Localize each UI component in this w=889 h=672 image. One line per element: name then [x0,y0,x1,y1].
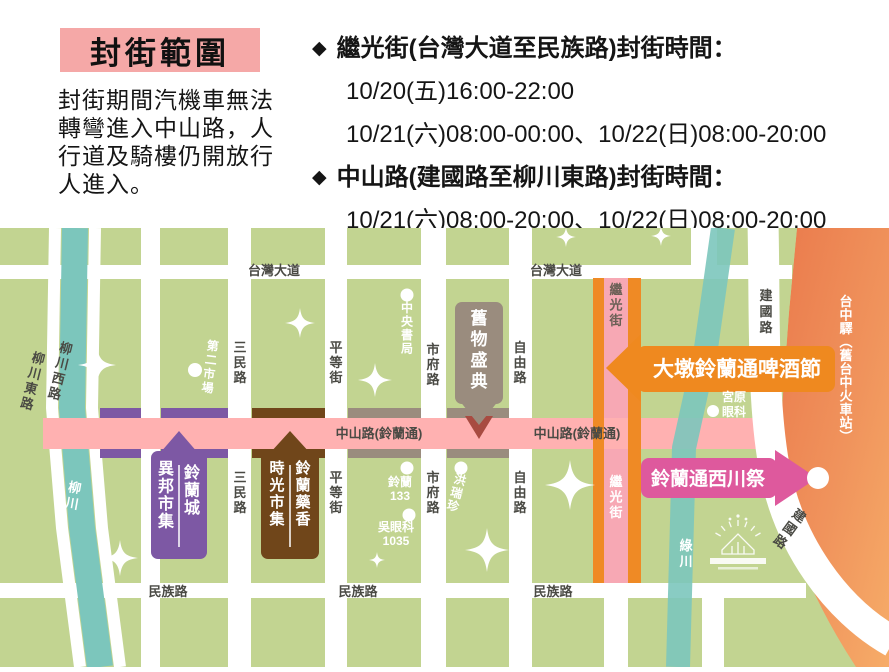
central-bookstore-label: 中央書局 [401,300,414,356]
shifu-rd-label: 市府路 [426,342,440,387]
closure-time-line: 10/21(六)08:00-00:00、10/22(日)08:00-20:00 [312,114,872,149]
taiwan-blvd-label: 台灣大道 [530,263,582,278]
miyahara-label-1: 宮原 [722,389,746,404]
sanmin-rd-label: 三民路 [233,340,247,385]
exotic-market-title: 異邦市集 [157,460,175,531]
wu-eye-clinic-label: 吳眼科 [377,519,414,534]
time-market-title: 時光市集 [268,459,285,528]
jiguang-st-south-road [604,598,628,667]
suzuran-133-label: 鈴蘭 [388,474,412,489]
poi-central-bookstore: 中央書局 [401,289,414,356]
ziyou-rd-label: 自由路 [513,340,527,385]
pingdeng-st-label: 平等街 [328,470,342,515]
closure-time-line: 10/20(五)16:00-22:00 [312,71,872,106]
time-market-name: 鈴蘭藥香 [294,459,311,528]
ziyou-rd-label: 自由路 [513,470,527,515]
closure-heading-text: 中山路(建國路至柳川東路)封街時間： [337,157,737,192]
diamond-bullet-icon: ◆ [312,166,327,189]
sanmin-rd-label: 三民路 [233,470,247,515]
zhongshan-rd-label: 中山路(鈴蘭通) [336,426,423,441]
minzu-rd-label: 民族路 [338,584,378,599]
festival-endpoint-dot [807,467,829,489]
taiwan-blvd-road [0,265,792,279]
wu-eye-clinic-number: 1035 [383,534,410,548]
lyuchuan-river-label: 綠川 [678,538,693,569]
closure-note: 封街期間汽機車無法轉彎進入中山路，人行道及騎樓仍開放行人進入。 [58,86,286,198]
shifu-rd-label: 市府路 [426,470,440,515]
taichung-station-label: 台中驛︵舊台中火車站︶ [838,294,853,444]
jiguang-st-label: 繼光街 [608,474,622,520]
side-street-south [702,598,724,667]
closure-heading-jiguang: ◆ 繼光街(台灣大道至民族路)封街時間： [312,28,872,63]
jiguang-closure-bar [628,278,641,583]
minzu-rd-label: 民族路 [148,584,188,599]
pingdeng-st-label: 平等街 [328,340,342,385]
west-river-festival-label: 鈴蘭通西川祭 [651,467,766,490]
street-closure-map: 鈴蘭城 異邦市集 鈴蘭藥香 時光市集 舊物盛典 大墩鈴蘭通啤酒節 鈴蘭通西川祭 [0,228,889,667]
closure-times-list: ◆ 繼光街(台灣大道至民族路)封街時間： 10/20(五)16:00-22:00… [312,28,872,243]
miyahara-label-2: 眼科 [722,404,746,419]
taiwan-blvd-label: 台灣大道 [248,263,300,278]
page-title-text: 封街範圍 [90,28,230,73]
page-title: 封街範圍 [60,28,260,72]
closure-heading-zhongshan: ◆ 中山路(建國路至柳川東路)封街時間： [312,157,872,192]
suzuran-133-number: 133 [390,489,410,503]
closure-heading-text: 繼光街(台灣大道至民族路)封街時間： [337,28,737,63]
exotic-market-name: 鈴蘭城 [184,463,201,517]
jiguang-st-label: 繼光街 [608,282,622,328]
minzu-rd-label: 民族路 [533,584,573,599]
diamond-bullet-icon: ◆ [312,37,327,60]
zhongshan-rd-label: 中山路(鈴蘭通) [534,426,621,441]
beer-festival-label: 大墩鈴蘭通啤酒節 [653,357,821,381]
jianguo-rd-label: 建國路 [759,288,773,335]
